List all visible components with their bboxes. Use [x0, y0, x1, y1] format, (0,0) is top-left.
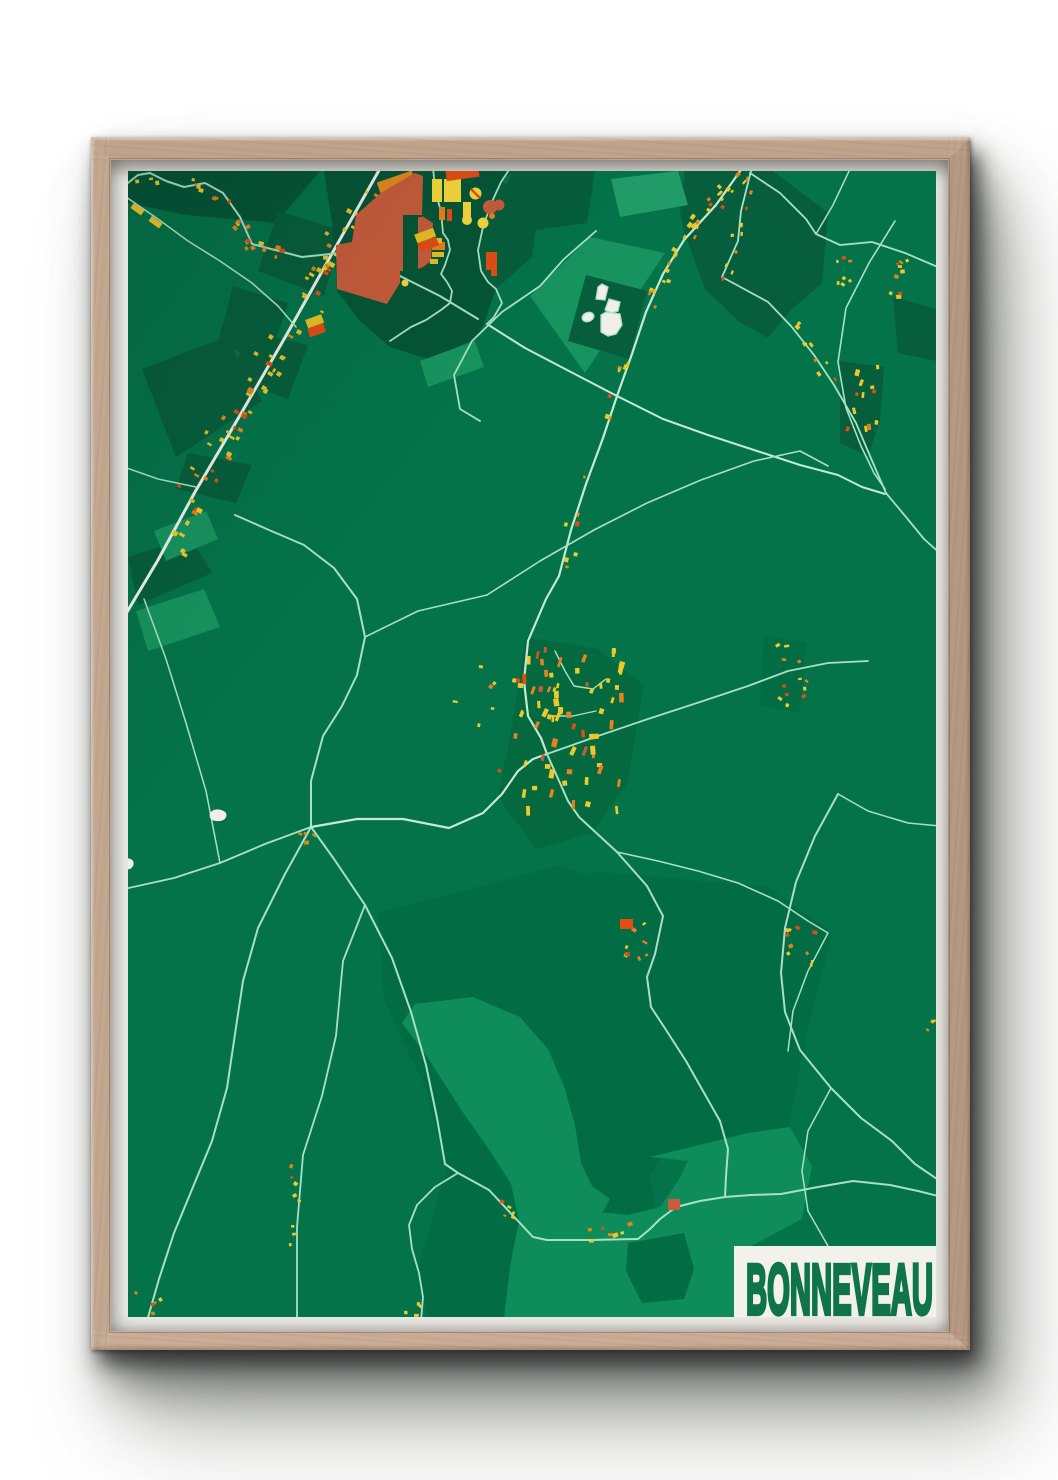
svg-text:BONNEVEAU: BONNEVEAU	[746, 1251, 933, 1317]
